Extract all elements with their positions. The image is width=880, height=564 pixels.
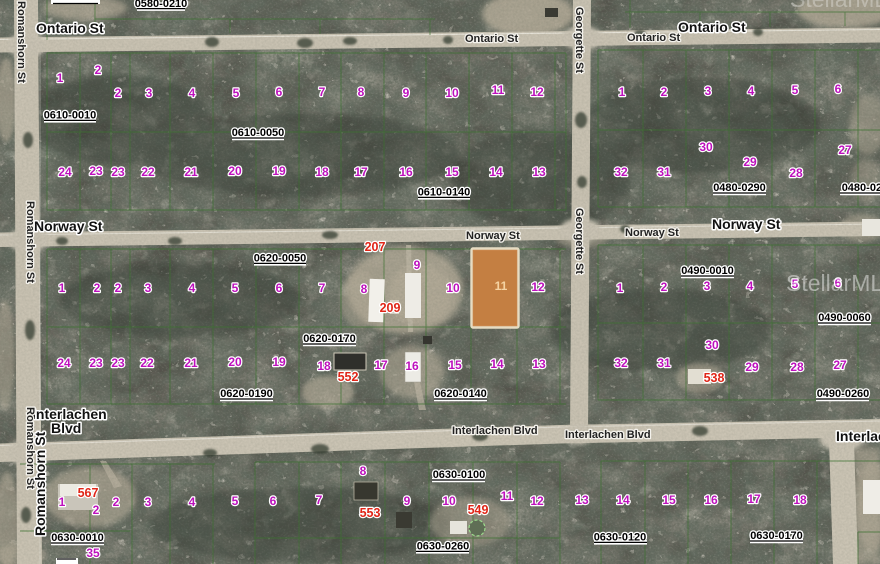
svg-text:538: 538: [704, 371, 725, 385]
svg-text:18: 18: [793, 493, 807, 507]
svg-text:22: 22: [140, 356, 154, 370]
svg-text:20: 20: [228, 164, 242, 178]
svg-text:4: 4: [189, 281, 196, 295]
svg-text:Interlachen Blvd: Interlachen Blvd: [565, 429, 651, 441]
svg-text:17: 17: [374, 358, 388, 372]
svg-text:0610-0050: 0610-0050: [232, 127, 285, 139]
svg-text:Norway St: Norway St: [34, 218, 103, 234]
svg-text:Ontario St: Ontario St: [678, 19, 746, 35]
svg-text:Georgette St: Georgette St: [573, 7, 585, 73]
svg-text:29: 29: [745, 360, 759, 374]
svg-text:13: 13: [532, 357, 546, 371]
svg-text:Blvd: Blvd: [51, 420, 81, 436]
svg-text:27: 27: [838, 143, 852, 157]
svg-text:6: 6: [835, 82, 842, 96]
svg-text:15: 15: [662, 493, 676, 507]
svg-text:6: 6: [270, 494, 277, 508]
svg-text:12: 12: [530, 85, 544, 99]
svg-text:Georgette St: Georgette St: [573, 208, 585, 274]
svg-text:Ontario St: Ontario St: [627, 32, 681, 44]
svg-text:8: 8: [360, 464, 367, 478]
svg-text:Ontario St: Ontario St: [36, 20, 104, 36]
svg-text:7: 7: [319, 85, 326, 99]
svg-text:30: 30: [705, 338, 719, 352]
svg-text:12: 12: [531, 280, 545, 294]
svg-text:31: 31: [657, 356, 671, 370]
svg-text:32: 32: [614, 356, 628, 370]
svg-text:35: 35: [86, 546, 100, 560]
svg-text:23: 23: [89, 356, 103, 370]
svg-text:14: 14: [616, 493, 630, 507]
svg-text:17: 17: [747, 492, 761, 506]
svg-text:30: 30: [699, 140, 713, 154]
svg-text:Interlachen: Interlachen: [836, 428, 880, 444]
svg-text:2: 2: [661, 280, 668, 294]
svg-text:13: 13: [575, 493, 589, 507]
svg-text:0630-0100: 0630-0100: [433, 469, 486, 481]
svg-text:9: 9: [404, 494, 411, 508]
svg-text:2: 2: [94, 281, 101, 295]
svg-text:0620-0140: 0620-0140: [434, 388, 487, 400]
svg-text:0610-0140: 0610-0140: [418, 187, 471, 199]
svg-text:4: 4: [747, 279, 754, 293]
svg-text:0620-0170: 0620-0170: [303, 333, 356, 345]
svg-text:7: 7: [319, 281, 326, 295]
svg-text:2: 2: [93, 503, 100, 517]
svg-text:Romanshorn St: Romanshorn St: [24, 201, 36, 283]
svg-text:StellarMLS: StellarMLS: [790, 0, 880, 12]
svg-text:Ontario St: Ontario St: [465, 33, 519, 45]
svg-text:8: 8: [358, 85, 365, 99]
svg-text:3: 3: [145, 495, 152, 509]
svg-text:6: 6: [276, 281, 283, 295]
svg-text:10: 10: [446, 281, 460, 295]
svg-text:24: 24: [58, 165, 72, 179]
svg-text:5: 5: [792, 83, 799, 97]
svg-text:28: 28: [790, 360, 804, 374]
svg-text:28: 28: [789, 166, 803, 180]
svg-text:12: 12: [530, 494, 544, 508]
svg-text:13: 13: [532, 165, 546, 179]
svg-text:23: 23: [89, 164, 103, 178]
svg-text:0480-0290: 0480-0290: [842, 182, 880, 194]
svg-text:553: 553: [360, 506, 381, 520]
svg-text:23: 23: [111, 356, 125, 370]
svg-text:20: 20: [228, 355, 242, 369]
svg-text:5: 5: [232, 281, 239, 295]
svg-text:Interlachen Blvd: Interlachen Blvd: [452, 425, 538, 437]
svg-text:4: 4: [189, 495, 196, 509]
svg-text:1: 1: [57, 71, 64, 85]
svg-text:29: 29: [743, 155, 757, 169]
svg-text:18: 18: [315, 165, 329, 179]
svg-text:6: 6: [276, 85, 283, 99]
svg-text:11: 11: [495, 279, 508, 293]
svg-text:0490-0260: 0490-0260: [817, 388, 870, 400]
svg-text:22: 22: [141, 165, 155, 179]
svg-text:1: 1: [59, 495, 66, 509]
svg-text:5: 5: [233, 86, 240, 100]
svg-text:19: 19: [272, 164, 286, 178]
svg-text:0490-0060: 0490-0060: [818, 312, 871, 324]
svg-text:2: 2: [113, 495, 120, 509]
svg-text:Romanshorn St: Romanshorn St: [15, 1, 27, 83]
svg-text:10: 10: [445, 86, 459, 100]
svg-text:209: 209: [380, 301, 401, 315]
svg-text:0610-0010: 0610-0010: [44, 110, 97, 122]
svg-text:16: 16: [704, 493, 718, 507]
svg-text:0630-0260: 0630-0260: [417, 541, 470, 553]
svg-text:567: 567: [78, 486, 99, 500]
svg-text:11: 11: [492, 83, 505, 97]
svg-text:4: 4: [189, 86, 196, 100]
svg-text:21: 21: [184, 165, 198, 179]
svg-text:3: 3: [145, 281, 152, 295]
svg-text:8: 8: [361, 282, 368, 296]
svg-text:23: 23: [111, 165, 125, 179]
svg-text:2: 2: [661, 85, 668, 99]
svg-text:24: 24: [57, 356, 71, 370]
svg-text:1: 1: [59, 281, 66, 295]
svg-text:2: 2: [115, 86, 122, 100]
svg-text:3: 3: [705, 84, 712, 98]
svg-text:552: 552: [338, 370, 359, 384]
svg-text:StellarMLS: StellarMLS: [786, 270, 880, 296]
svg-text:0630-0010: 0630-0010: [51, 532, 104, 544]
svg-text:0630-0170: 0630-0170: [750, 530, 803, 542]
svg-text:10: 10: [442, 494, 456, 508]
svg-text:Norway St: Norway St: [712, 216, 781, 232]
svg-text:0620-0050: 0620-0050: [254, 253, 307, 265]
svg-text:15: 15: [448, 358, 462, 372]
svg-text:27: 27: [833, 358, 847, 372]
svg-text:0630-0120: 0630-0120: [594, 532, 647, 544]
svg-text:19: 19: [272, 355, 286, 369]
svg-text:207: 207: [365, 240, 386, 254]
svg-text:0480-0290: 0480-0290: [713, 182, 766, 194]
svg-text:3: 3: [704, 279, 711, 293]
svg-text:2: 2: [95, 63, 102, 77]
svg-text:0620-0190: 0620-0190: [220, 388, 273, 400]
svg-text:0490-0010: 0490-0010: [681, 265, 734, 277]
svg-text:14: 14: [490, 357, 504, 371]
svg-text:18: 18: [317, 359, 331, 373]
svg-text:Romanshorn St: Romanshorn St: [32, 431, 48, 536]
svg-text:9: 9: [414, 258, 421, 272]
svg-text:32: 32: [614, 165, 628, 179]
svg-text:3: 3: [146, 86, 153, 100]
svg-text:21: 21: [184, 356, 198, 370]
svg-text:31: 31: [657, 165, 671, 179]
svg-text:16: 16: [405, 359, 419, 373]
svg-text:Norway St: Norway St: [625, 227, 679, 239]
svg-text:1: 1: [619, 85, 626, 99]
svg-text:15: 15: [445, 165, 459, 179]
svg-text:7: 7: [316, 493, 323, 507]
svg-text:2: 2: [115, 281, 122, 295]
svg-text:1: 1: [617, 281, 624, 295]
svg-text:549: 549: [468, 503, 489, 517]
svg-text:9: 9: [403, 86, 410, 100]
svg-text:17: 17: [354, 165, 368, 179]
svg-text:11: 11: [501, 489, 514, 503]
svg-text:Norway St: Norway St: [466, 230, 520, 242]
svg-text:4: 4: [748, 84, 755, 98]
svg-text:16: 16: [399, 165, 413, 179]
svg-text:14: 14: [489, 165, 503, 179]
svg-text:5: 5: [232, 494, 239, 508]
